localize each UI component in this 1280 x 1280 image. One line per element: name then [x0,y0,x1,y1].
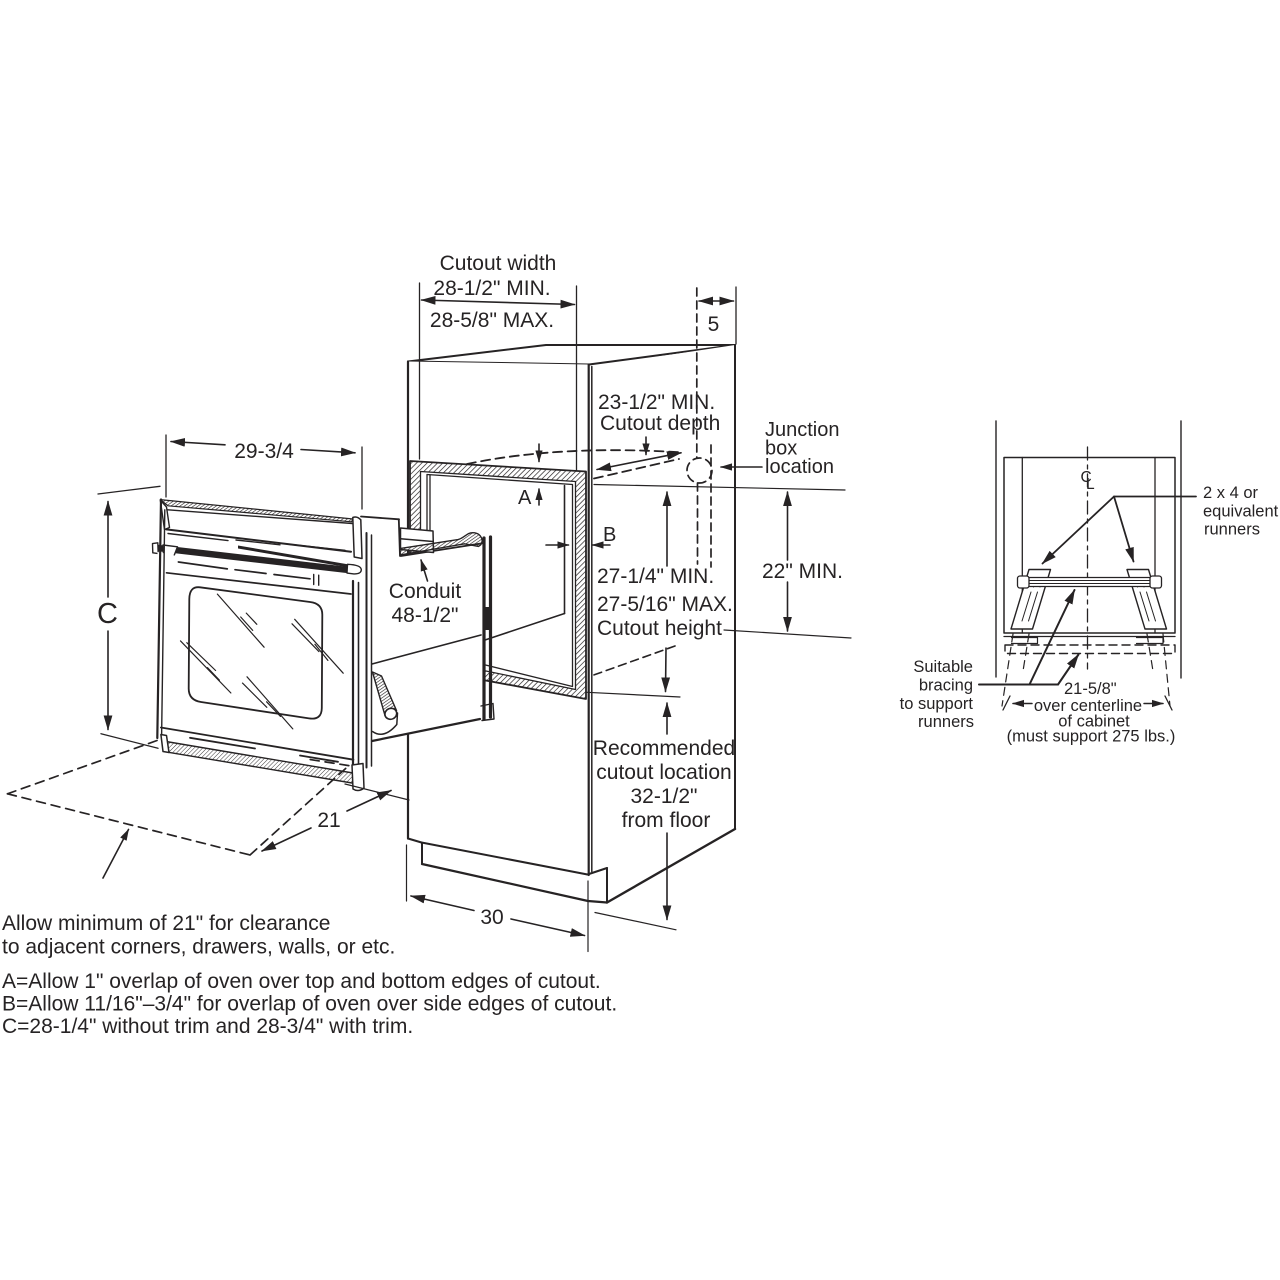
svg-text:22" MIN.: 22" MIN. [762,560,843,583]
svg-text:28-5/8" MAX.: 28-5/8" MAX. [430,309,554,332]
svg-text:to adjacent corners, drawers,: to adjacent corners, drawers, walls, or … [2,936,395,959]
svg-text:2 x 4 or: 2 x 4 or [1203,484,1259,502]
svg-text:L: L [1086,476,1095,493]
svg-text:C=28-1/4" without trim and 28-: C=28-1/4" without trim and 28-3/4" with … [2,1015,413,1038]
svg-text:A: A [518,487,532,509]
svg-text:Cutout width: Cutout width [440,252,557,275]
svg-text:Cutout height: Cutout height [597,617,722,640]
svg-text:21: 21 [317,809,340,832]
svg-text:B: B [603,524,616,546]
svg-text:23-1/2" MIN.: 23-1/2" MIN. [598,391,715,414]
svg-text:C: C [97,598,118,630]
svg-text:48-1/2": 48-1/2" [392,604,459,627]
svg-text:B=Allow 11/16"–3/4" for overla: B=Allow 11/16"–3/4" for overlap of oven … [2,993,617,1016]
svg-text:30: 30 [480,906,503,929]
svg-text:21-5/8": 21-5/8" [1064,680,1117,698]
svg-text:A=Allow 1" overlap of oven ove: A=Allow 1" overlap of oven over top and … [2,970,601,993]
svg-text:bracing: bracing [919,677,973,695]
svg-text:Conduit: Conduit [389,580,462,603]
svg-text:Allow minimum of 21" for clear: Allow minimum of 21" for clearance [2,912,330,935]
svg-text:location: location [765,456,834,478]
svg-text:equivalent: equivalent [1203,503,1279,521]
svg-text:to support: to support [900,695,974,713]
svg-text:29-3/4: 29-3/4 [234,440,294,463]
svg-text:27-1/4" MIN.: 27-1/4" MIN. [597,565,714,588]
svg-text:(must support 275 lbs.): (must support 275 lbs.) [1007,728,1176,746]
svg-text:cutout location: cutout location [596,761,731,784]
svg-text:28-1/2" MIN.: 28-1/2" MIN. [433,277,550,300]
svg-text:27-5/16" MAX.: 27-5/16" MAX. [597,593,733,616]
svg-text:from floor: from floor [622,809,711,832]
svg-text:5: 5 [708,313,720,336]
svg-text:runners: runners [1204,521,1260,539]
svg-text:Suitable: Suitable [913,658,973,676]
svg-text:Recommended: Recommended [593,737,735,760]
svg-text:runners: runners [918,713,974,731]
svg-text:32-1/2": 32-1/2" [631,785,698,808]
svg-text:Cutout depth: Cutout depth [600,412,720,435]
